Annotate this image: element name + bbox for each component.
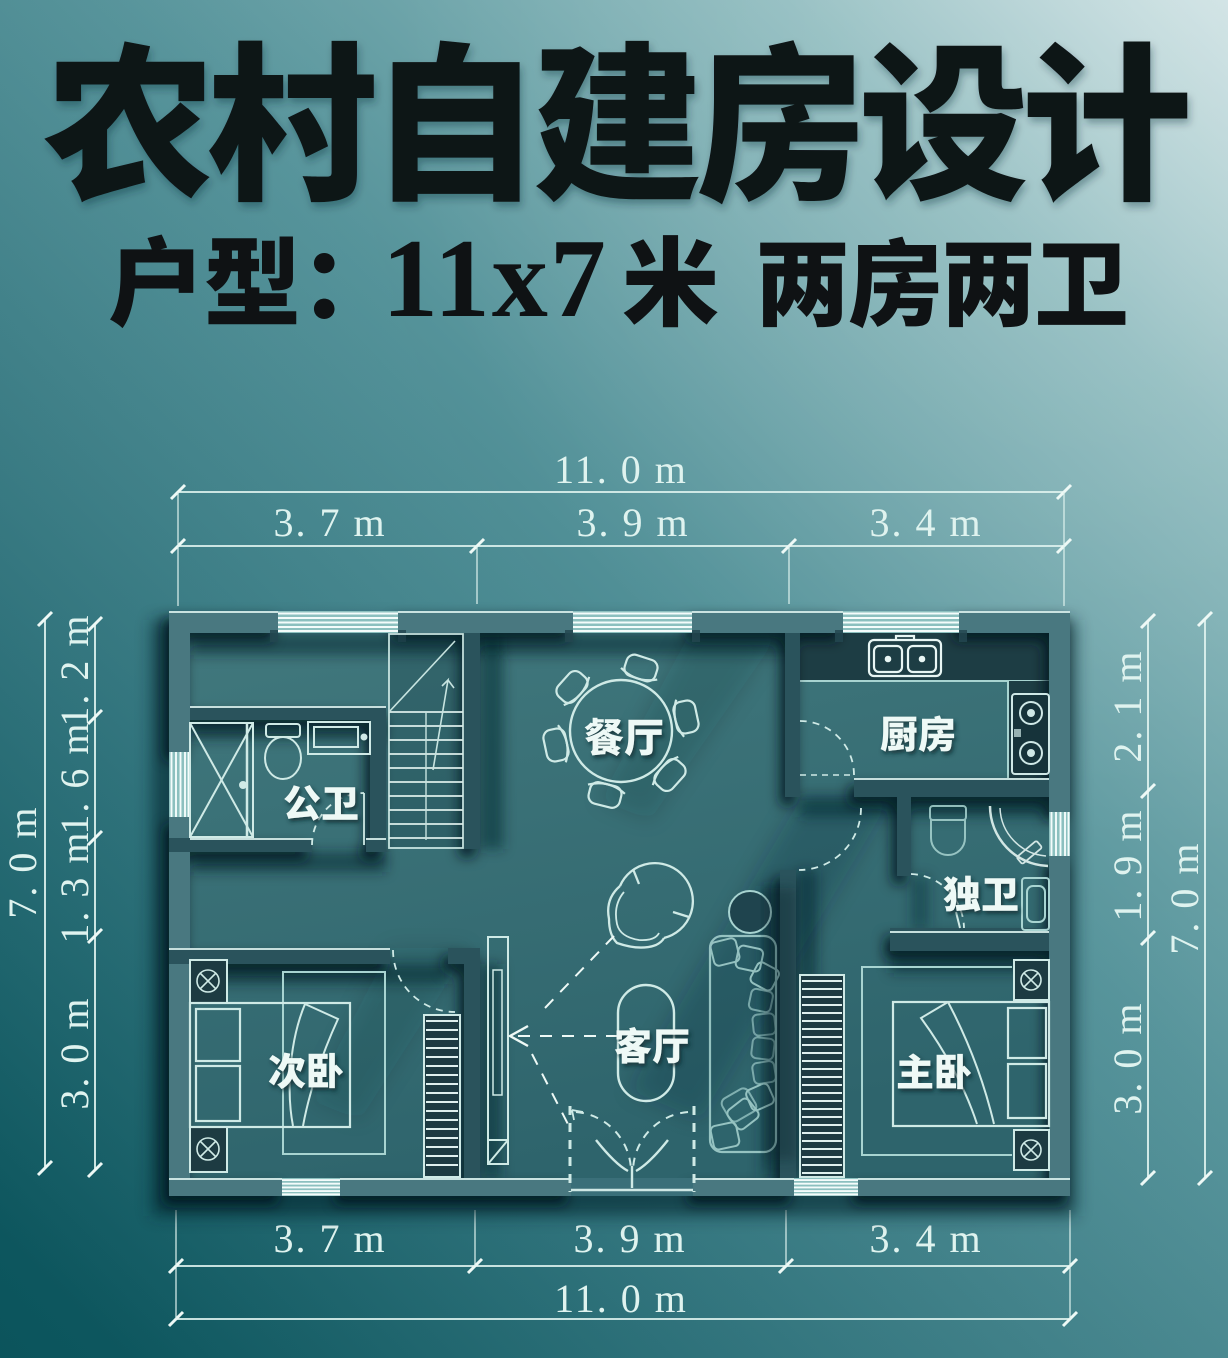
- svg-text:1. 3 m: 1. 3 m: [52, 830, 97, 943]
- svg-text:3. 9 m: 3. 9 m: [576, 500, 689, 545]
- svg-text:11x7: 11x7: [382, 217, 608, 341]
- svg-text:3. 7 m: 3. 7 m: [273, 500, 386, 545]
- svg-text:2. 1 m: 2. 1 m: [1105, 649, 1150, 762]
- svg-text:7. 0 m: 7. 0 m: [1162, 841, 1207, 954]
- svg-text:3. 4 m: 3. 4 m: [869, 500, 982, 545]
- svg-text:3. 7 m: 3. 7 m: [273, 1216, 386, 1261]
- svg-text:3. 0 m: 3. 0 m: [1105, 1001, 1150, 1114]
- svg-text:1. 2 m: 1. 2 m: [52, 613, 97, 726]
- svg-text:3. 9 m: 3. 9 m: [573, 1216, 686, 1261]
- svg-text:3. 0 m: 3. 0 m: [52, 996, 97, 1109]
- svg-text:11. 0 m: 11. 0 m: [554, 447, 688, 492]
- svg-text:1. 6 m: 1. 6 m: [52, 721, 97, 834]
- svg-text:3. 4 m: 3. 4 m: [869, 1216, 982, 1261]
- svg-text:7. 0 m: 7. 0 m: [0, 805, 45, 918]
- svg-text:11. 0 m: 11. 0 m: [554, 1276, 688, 1321]
- svg-text:1. 9 m: 1. 9 m: [1105, 808, 1150, 921]
